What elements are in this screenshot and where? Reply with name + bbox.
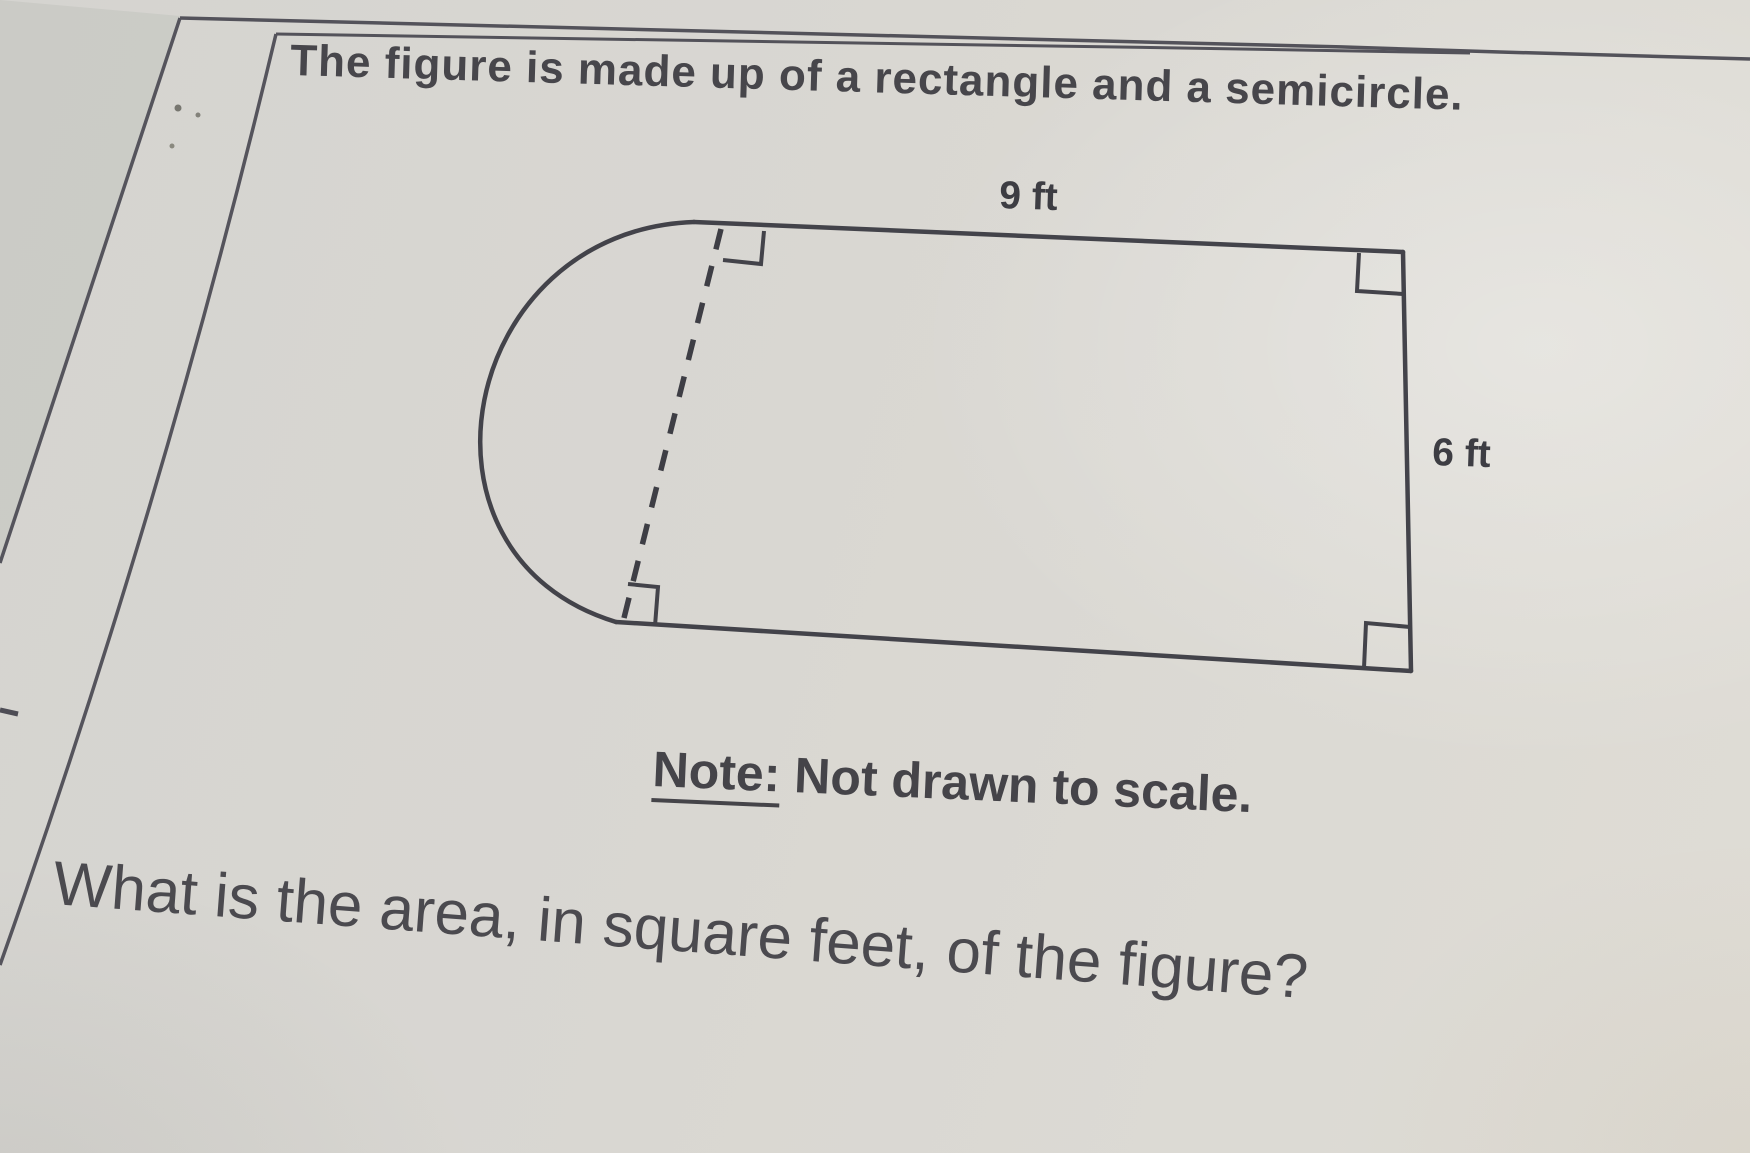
right-angle-mark-bottom-right-corner [1364,623,1410,668]
rectangle-bottom-edge [616,622,1411,671]
paper-speck [175,105,182,112]
question-box-left-inner-border [0,34,276,965]
question-box-left-outer-border [0,18,180,563]
right-angle-mark-top-right-corner [1357,253,1403,294]
rectangle-right-edge [1403,252,1411,671]
right-angle-mark-top-of-diameter [723,231,764,264]
note-label: Note: [651,741,781,808]
rectangle-top-edge [694,222,1403,252]
width-dimension-label: 9 ft [998,174,1058,220]
right-angle-mark-bottom-of-diameter [628,584,658,626]
semicircle-diameter-dashed-line [624,229,721,618]
semicircle-arc [480,222,694,622]
paper-speck [196,113,201,118]
height-dimension-label: 6 ft [1431,431,1491,477]
paper-speck [170,144,175,149]
worksheet-photo: The figure is made up of a rectangle and… [0,0,1750,1153]
left-edge-tick-mark [0,710,18,714]
